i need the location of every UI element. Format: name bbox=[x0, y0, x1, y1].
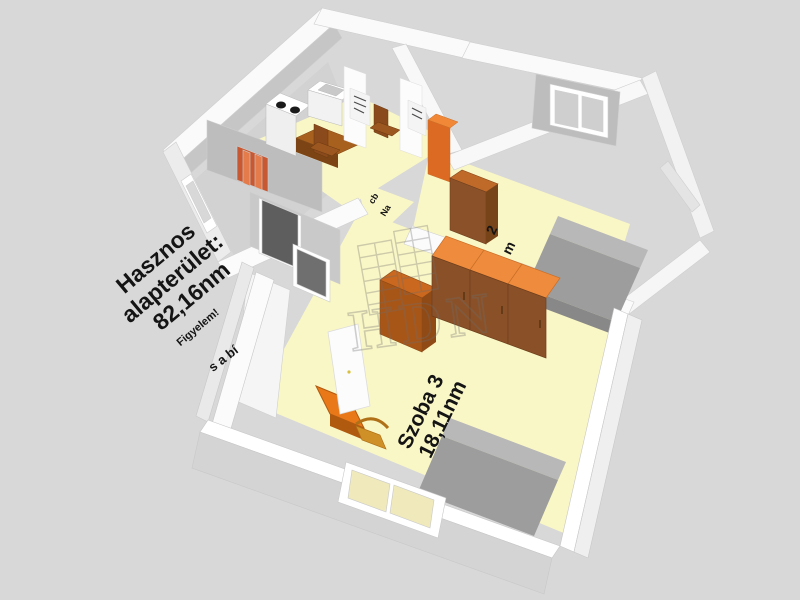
floor-plan-render: HDN Hasznos alapterület: 82,16nm Figyele… bbox=[0, 0, 800, 600]
stove-burner-icon bbox=[276, 102, 286, 109]
red-door-panel-right bbox=[255, 154, 262, 190]
stove-burner-icon bbox=[290, 107, 300, 114]
door-handle-icon bbox=[347, 370, 350, 373]
window-back-glass-right bbox=[582, 96, 603, 132]
red-door-panel-left bbox=[243, 150, 250, 186]
floor-plan-screenshot: HDN Hasznos alapterület: 82,16nm Figyele… bbox=[0, 0, 800, 600]
window-back-glass-left bbox=[555, 90, 578, 128]
orange-cabinet-front bbox=[428, 120, 450, 182]
